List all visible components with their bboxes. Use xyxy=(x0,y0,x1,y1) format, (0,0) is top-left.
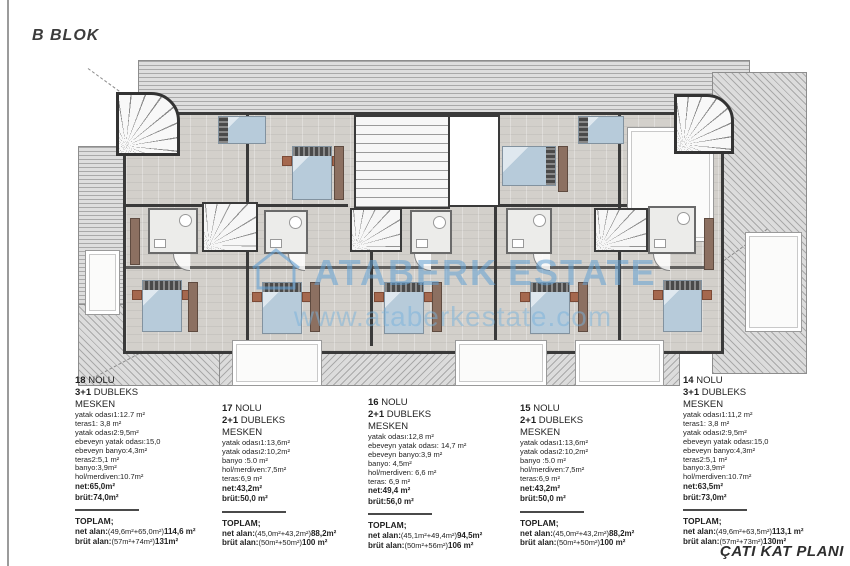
total-net-label: net alan: xyxy=(683,527,716,536)
wardrobe xyxy=(310,282,320,332)
room-line: teras:6,9 m² xyxy=(222,475,364,484)
wardrobe xyxy=(130,218,140,265)
unit-number-value: 14 xyxy=(683,375,694,386)
divider xyxy=(683,509,747,511)
unit-type: 2+1 DUBLEKS xyxy=(222,415,364,427)
unit-number: 15 NOLU xyxy=(520,403,662,415)
total-gross-line: brüt alan:(57m²+74m²)131m² xyxy=(75,537,217,547)
plan-title: ÇATI KAT PLANI xyxy=(720,543,844,560)
bathroom xyxy=(264,210,308,254)
gross-area: brüt:50,0 m² xyxy=(222,494,364,505)
bathroom xyxy=(506,208,552,254)
bed-headboard xyxy=(293,147,331,156)
total-gross-value: 106 m² xyxy=(448,541,473,550)
roof-hatch-top xyxy=(138,60,750,116)
total-net-formula: (49,6m²+65,0m²) xyxy=(108,527,164,536)
bed xyxy=(292,146,332,200)
terrace-left xyxy=(85,250,120,315)
wardrobe xyxy=(558,146,568,192)
unit-type-value: 2+1 xyxy=(520,415,536,426)
room-line: teras:6,9 m² xyxy=(520,475,662,484)
unit-type-suffix: DUBLEKS xyxy=(539,415,583,426)
total-net-formula: (45,0m²+43,2m²) xyxy=(553,529,609,538)
total-net-formula: (45,0m²+43,2m²) xyxy=(255,529,311,538)
terrace-bottom-2 xyxy=(455,340,547,386)
bathroom xyxy=(410,210,452,254)
total-net-value: 113,1 m² xyxy=(772,527,804,536)
unit-number: 14 NOLU xyxy=(683,375,825,387)
page: { "header": { "block_title": "B BLOK" },… xyxy=(0,0,850,566)
total-net-value: 88,2m² xyxy=(311,529,336,538)
total-net-line: net alan:(45,1m²+49,4m²)94,5m² xyxy=(368,531,510,541)
unit-number-suffix: NOLU xyxy=(235,403,261,414)
total-gross-line: brüt alan:(50m²+50m²)100 m² xyxy=(222,538,364,548)
total-label: TOPLAM; xyxy=(520,518,662,529)
total-gross-line: brüt alan:(50m²+50m²)100 m² xyxy=(520,538,662,548)
unit-type-suffix: DUBLEKS xyxy=(94,387,138,398)
floor-plan: ATABERK ESTATE www.ataberkestate.com xyxy=(78,58,805,396)
total-gross-formula: (50m²+50m²) xyxy=(258,538,302,547)
total-net-label: net alan: xyxy=(222,529,255,538)
divider xyxy=(75,509,139,511)
winder-stair xyxy=(350,208,402,252)
unit-number-value: 16 xyxy=(368,397,379,408)
total-gross-value: 131m² xyxy=(155,537,178,546)
gross-area: brüt:74,0m² xyxy=(75,493,217,504)
wardrobe xyxy=(432,282,442,332)
total-gross-value: 100 m² xyxy=(302,538,327,547)
total-gross-formula: (50m²+56m²) xyxy=(404,541,448,550)
wardrobe xyxy=(704,218,714,270)
bed-headboard xyxy=(219,117,228,143)
gross-area: brüt:56,0 m² xyxy=(368,497,510,508)
bathroom xyxy=(148,208,198,254)
divider xyxy=(368,513,432,515)
terrace-right xyxy=(745,232,802,332)
total-net-formula: (49,6m²+63,5m²) xyxy=(716,527,772,536)
total-gross-line: brüt alan:(50m²+56m²)106 m² xyxy=(368,541,510,551)
bed xyxy=(663,280,702,332)
bed-headboard xyxy=(385,283,423,292)
total-net-value: 94,5m² xyxy=(457,531,482,540)
bed xyxy=(384,282,424,334)
winder-stair xyxy=(202,202,258,252)
unit-spec-14: 14 NOLU 3+1 DUBLEKS MESKEN yatak odası1:… xyxy=(683,375,825,546)
terrace-bottom-1 xyxy=(232,340,322,386)
gross-area: brüt:73,0m² xyxy=(683,493,825,504)
unit-number: 16 NOLU xyxy=(368,397,510,409)
bed xyxy=(502,146,556,186)
total-net-value: 88,2m² xyxy=(609,529,634,538)
unit-spec-17: 17 NOLU 2+1 DUBLEKS MESKEN yatak odası1:… xyxy=(222,403,364,548)
unit-type: 3+1 DUBLEKS xyxy=(75,387,217,399)
net-area: net:43,2m² xyxy=(222,484,364,495)
total-gross-label: brüt alan: xyxy=(683,537,719,546)
unit-spec-15: 15 NOLU 2+1 DUBLEKS MESKEN yatak odası1:… xyxy=(520,403,662,548)
unit-type-suffix: DUBLEKS xyxy=(387,409,431,420)
total-net-label: net alan: xyxy=(75,527,108,536)
page-edge-line xyxy=(7,0,9,566)
total-gross-label: brüt alan: xyxy=(75,537,111,546)
bed xyxy=(142,280,182,332)
spiral-stair-left xyxy=(116,92,180,156)
bed xyxy=(218,116,266,144)
block-title: B BLOK xyxy=(32,27,99,45)
total-net-line: net alan:(45,0m²+43,2m²)88,2m² xyxy=(520,529,662,539)
spiral-stair-right xyxy=(674,94,734,154)
unit-number-value: 17 xyxy=(222,403,233,414)
total-net-label: net alan: xyxy=(520,529,553,538)
wardrobe xyxy=(334,146,344,200)
total-label: TOPLAM; xyxy=(75,516,217,527)
total-gross-label: brüt alan: xyxy=(222,538,258,547)
wardrobe xyxy=(188,282,198,332)
unit-type-value: 3+1 xyxy=(75,387,91,398)
unit-type-suffix: DUBLEKS xyxy=(702,387,746,398)
bed-headboard xyxy=(263,283,301,292)
bed-headboard xyxy=(143,281,181,290)
unit-number-value: 15 xyxy=(520,403,531,414)
total-gross-value: 100 m² xyxy=(600,538,625,547)
terrace-bottom-3 xyxy=(575,340,664,386)
bed xyxy=(262,282,302,334)
divider xyxy=(520,511,584,513)
room-line: hol/merdiven:10.7m² xyxy=(683,473,825,482)
room-line: teras: 6,9 m² xyxy=(368,478,510,487)
net-area: net:49,4 m² xyxy=(368,486,510,497)
total-gross-formula: (50m²+50m²) xyxy=(556,538,600,547)
net-area: net:43,2m² xyxy=(520,484,662,495)
net-area: net:63,5m² xyxy=(683,482,825,493)
unit-type-value: 2+1 xyxy=(368,409,384,420)
bathroom xyxy=(648,206,696,254)
unit-spec-16: 16 NOLU 2+1 DUBLEKS MESKEN yatak odası:1… xyxy=(368,397,510,550)
total-label: TOPLAM; xyxy=(368,520,510,531)
unit-number-value: 18 xyxy=(75,375,86,386)
unit-number: 18 NOLU xyxy=(75,375,217,387)
total-net-line: net alan:(49,6m²+65,0m²)114,6 m² xyxy=(75,527,217,537)
unit-type: 3+1 DUBLEKS xyxy=(683,387,825,399)
unit-number-suffix: NOLU xyxy=(696,375,722,386)
bed-headboard xyxy=(531,283,569,292)
unit-type-value: 2+1 xyxy=(222,415,238,426)
total-net-label: net alan: xyxy=(368,531,401,540)
total-gross-label: brüt alan: xyxy=(368,541,404,550)
unit-type: 2+1 DUBLEKS xyxy=(368,409,510,421)
total-label: TOPLAM; xyxy=(683,516,825,527)
unit-type-suffix: DUBLEKS xyxy=(241,415,285,426)
total-label: TOPLAM; xyxy=(222,518,364,529)
unit-spec-18: 18 NOLU 3+1 DUBLEKS MESKEN yatak odası1:… xyxy=(75,375,217,546)
divider xyxy=(222,511,286,513)
total-gross-formula: (57m²+74m²) xyxy=(111,537,155,546)
total-gross-label: brüt alan: xyxy=(520,538,556,547)
bed xyxy=(578,116,624,144)
bed-headboard xyxy=(579,117,588,143)
total-net-value: 114,6 m² xyxy=(164,527,196,536)
net-area: net:65,0m² xyxy=(75,482,217,493)
total-net-formula: (45,1m²+49,4m²) xyxy=(401,531,457,540)
winder-stair xyxy=(594,208,648,252)
bed-headboard xyxy=(546,147,555,185)
unit-number-suffix: NOLU xyxy=(88,375,114,386)
room-line: hol/merdiven:10.7m² xyxy=(75,473,217,482)
total-net-line: net alan:(45,0m²+43,2m²)88,2m² xyxy=(222,529,364,539)
elevator-shaft xyxy=(448,115,500,207)
unit-type: 2+1 DUBLEKS xyxy=(520,415,662,427)
unit-number-suffix: NOLU xyxy=(381,397,407,408)
main-staircase xyxy=(354,115,450,209)
total-net-line: net alan:(49,6m²+63,5m²)113,1 m² xyxy=(683,527,825,537)
unit-number: 17 NOLU xyxy=(222,403,364,415)
bed xyxy=(530,282,570,334)
unit-type-value: 3+1 xyxy=(683,387,699,398)
unit-number-suffix: NOLU xyxy=(533,403,559,414)
wardrobe xyxy=(578,282,588,332)
gross-area: brüt:50,0 m² xyxy=(520,494,662,505)
bed-headboard xyxy=(664,281,701,290)
